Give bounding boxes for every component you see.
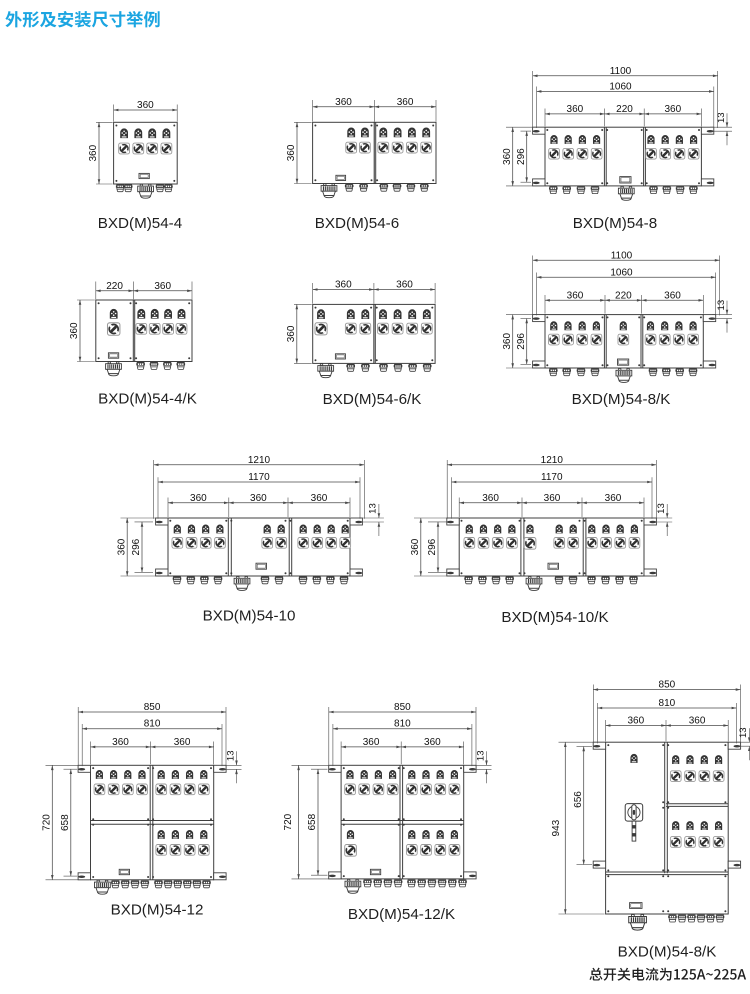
svg-text:360: 360 (88, 144, 99, 161)
svg-text:296: 296 (516, 333, 527, 350)
svg-text:810: 810 (659, 698, 676, 709)
svg-text:720: 720 (283, 813, 294, 830)
svg-text:943: 943 (551, 819, 562, 836)
svg-text:BXD(M)54-12/K: BXD(M)54-12/K (348, 906, 455, 923)
svg-text:13: 13 (475, 750, 486, 761)
svg-text:360: 360 (627, 716, 644, 727)
svg-text:360: 360 (363, 737, 380, 748)
svg-text:658: 658 (60, 814, 71, 831)
svg-text:1100: 1100 (610, 66, 632, 77)
svg-text:1170: 1170 (248, 472, 270, 483)
svg-text:BXD(M)54-6/K: BXD(M)54-6/K (323, 391, 422, 408)
svg-text:360: 360 (190, 493, 207, 504)
svg-text:1060: 1060 (609, 81, 632, 92)
svg-text:BXD(M)54-6: BXD(M)54-6 (315, 215, 399, 232)
svg-text:296: 296 (516, 148, 527, 165)
svg-text:220: 220 (616, 104, 633, 115)
svg-text:360: 360 (605, 493, 622, 504)
svg-text:656: 656 (573, 791, 584, 808)
svg-text:360: 360 (335, 97, 352, 108)
svg-text:1170: 1170 (541, 472, 563, 483)
svg-text:13: 13 (716, 300, 727, 311)
svg-text:360: 360 (174, 737, 191, 748)
svg-text:220: 220 (106, 281, 123, 292)
svg-text:360: 360 (112, 737, 129, 748)
svg-text:360: 360 (664, 104, 681, 115)
svg-text:360: 360 (335, 280, 352, 291)
svg-text:360: 360 (424, 737, 441, 748)
svg-text:360: 360 (396, 280, 413, 291)
svg-text:360: 360 (116, 538, 127, 555)
svg-text:BXD(M)54-8: BXD(M)54-8 (573, 215, 657, 232)
svg-text:296: 296 (427, 538, 438, 555)
svg-text:360: 360 (137, 100, 154, 111)
svg-text:1100: 1100 (611, 250, 633, 261)
svg-text:360: 360 (286, 325, 297, 342)
svg-text:13: 13 (225, 750, 236, 761)
svg-text:BXD(M)54-10/K: BXD(M)54-10/K (501, 609, 608, 626)
svg-text:360: 360 (664, 290, 681, 301)
svg-text:13: 13 (656, 503, 667, 514)
svg-text:BXD(M)54-4: BXD(M)54-4 (98, 215, 182, 232)
svg-text:220: 220 (615, 290, 632, 301)
svg-text:360: 360 (502, 333, 513, 350)
svg-text:360: 360 (689, 716, 706, 727)
svg-text:BXD(M)54-10: BXD(M)54-10 (203, 608, 296, 625)
svg-text:360: 360 (69, 322, 80, 339)
svg-text:13: 13 (738, 727, 749, 738)
svg-text:BXD(M)54-4/K: BXD(M)54-4/K (98, 391, 197, 408)
svg-text:850: 850 (394, 702, 411, 713)
svg-text:810: 810 (144, 719, 161, 730)
svg-text:BXD(M)54-8/K: BXD(M)54-8/K (618, 944, 717, 961)
svg-text:360: 360 (482, 493, 499, 504)
svg-text:850: 850 (144, 702, 161, 713)
svg-text:360: 360 (311, 493, 328, 504)
svg-text:360: 360 (154, 281, 171, 292)
svg-text:1210: 1210 (541, 455, 564, 466)
svg-text:360: 360 (544, 493, 561, 504)
svg-text:1060: 1060 (610, 267, 633, 278)
svg-text:850: 850 (659, 680, 676, 691)
svg-text:720: 720 (41, 814, 52, 831)
svg-text:360: 360 (567, 290, 584, 301)
svg-text:13: 13 (716, 112, 727, 123)
svg-text:360: 360 (286, 144, 297, 161)
svg-text:1210: 1210 (248, 455, 271, 466)
svg-text:296: 296 (131, 538, 142, 555)
svg-text:360: 360 (397, 97, 414, 108)
svg-text:810: 810 (394, 719, 411, 730)
svg-text:13: 13 (368, 503, 379, 514)
svg-text:360: 360 (567, 104, 584, 115)
svg-text:BXD(M)54-8/K: BXD(M)54-8/K (572, 391, 671, 408)
svg-text:360: 360 (250, 493, 267, 504)
svg-text:360: 360 (410, 538, 421, 555)
svg-text:BXD(M)54-12: BXD(M)54-12 (111, 902, 204, 919)
svg-text:360: 360 (502, 148, 513, 165)
svg-text:658: 658 (307, 813, 318, 830)
